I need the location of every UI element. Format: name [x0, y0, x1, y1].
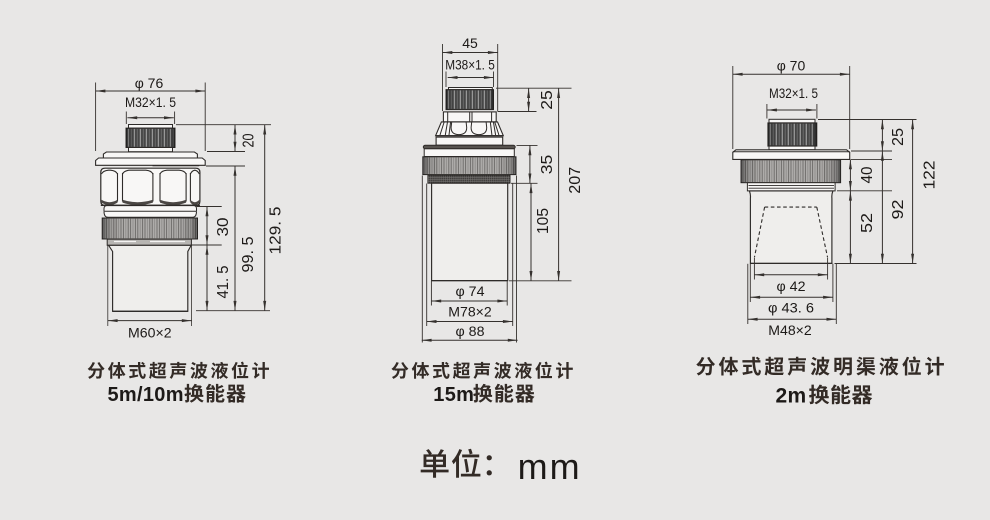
svg-text:5m/10m: 5m/10m — [108, 384, 184, 406]
svg-text:45: 45 — [462, 35, 478, 51]
svg-text:φ 42: φ 42 — [777, 278, 806, 294]
svg-text:92: 92 — [890, 199, 907, 219]
svg-text:15m: 15m — [433, 384, 474, 406]
svg-text:φ 70: φ 70 — [777, 58, 806, 74]
svg-text:35: 35 — [539, 155, 556, 175]
svg-text:M48×2: M48×2 — [768, 322, 812, 338]
svg-text:52: 52 — [859, 213, 876, 233]
svg-text:105: 105 — [535, 208, 552, 234]
svg-text:40: 40 — [859, 166, 876, 183]
svg-text:M32×1. 5: M32×1. 5 — [769, 85, 818, 101]
svg-text:30: 30 — [215, 217, 232, 236]
svg-text:M78×2: M78×2 — [448, 303, 492, 319]
svg-text:99. 5: 99. 5 — [240, 236, 257, 272]
svg-text:φ 74: φ 74 — [456, 283, 485, 299]
svg-text:M38×1. 5: M38×1. 5 — [445, 57, 495, 73]
svg-text:207: 207 — [567, 167, 584, 194]
svg-text:129. 5: 129. 5 — [268, 206, 285, 254]
svg-text:M60×2: M60×2 — [128, 325, 172, 341]
svg-text:φ 43. 6: φ 43. 6 — [768, 299, 814, 315]
svg-text:25: 25 — [539, 90, 556, 110]
svg-text:122: 122 — [922, 160, 939, 189]
svg-text:M32×1. 5: M32×1. 5 — [125, 94, 176, 110]
svg-text:41. 5: 41. 5 — [215, 265, 232, 298]
svg-text:φ 88: φ 88 — [456, 323, 485, 339]
svg-text:20: 20 — [241, 133, 258, 147]
svg-text:φ 76: φ 76 — [135, 75, 164, 91]
svg-text:mm: mm — [518, 446, 582, 487]
svg-text:2m: 2m — [776, 384, 807, 407]
svg-text:25: 25 — [890, 128, 907, 146]
